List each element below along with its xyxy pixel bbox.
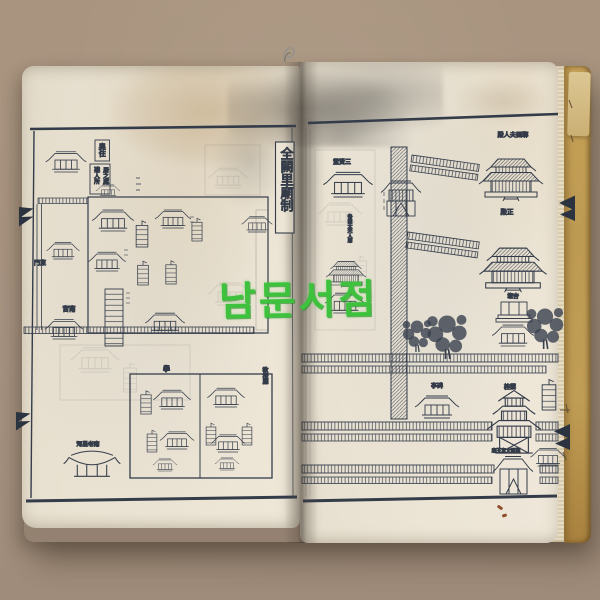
binding-thread <box>284 48 294 62</box>
binding-thread <box>285 53 291 62</box>
left-page <box>22 66 300 528</box>
photo-stage: 全闕里廟制 奧住 殘人所 居之處 東門 <box>0 0 600 600</box>
right-page <box>300 62 558 543</box>
book-cover <box>564 66 591 543</box>
cover-tear-patch <box>567 72 591 137</box>
